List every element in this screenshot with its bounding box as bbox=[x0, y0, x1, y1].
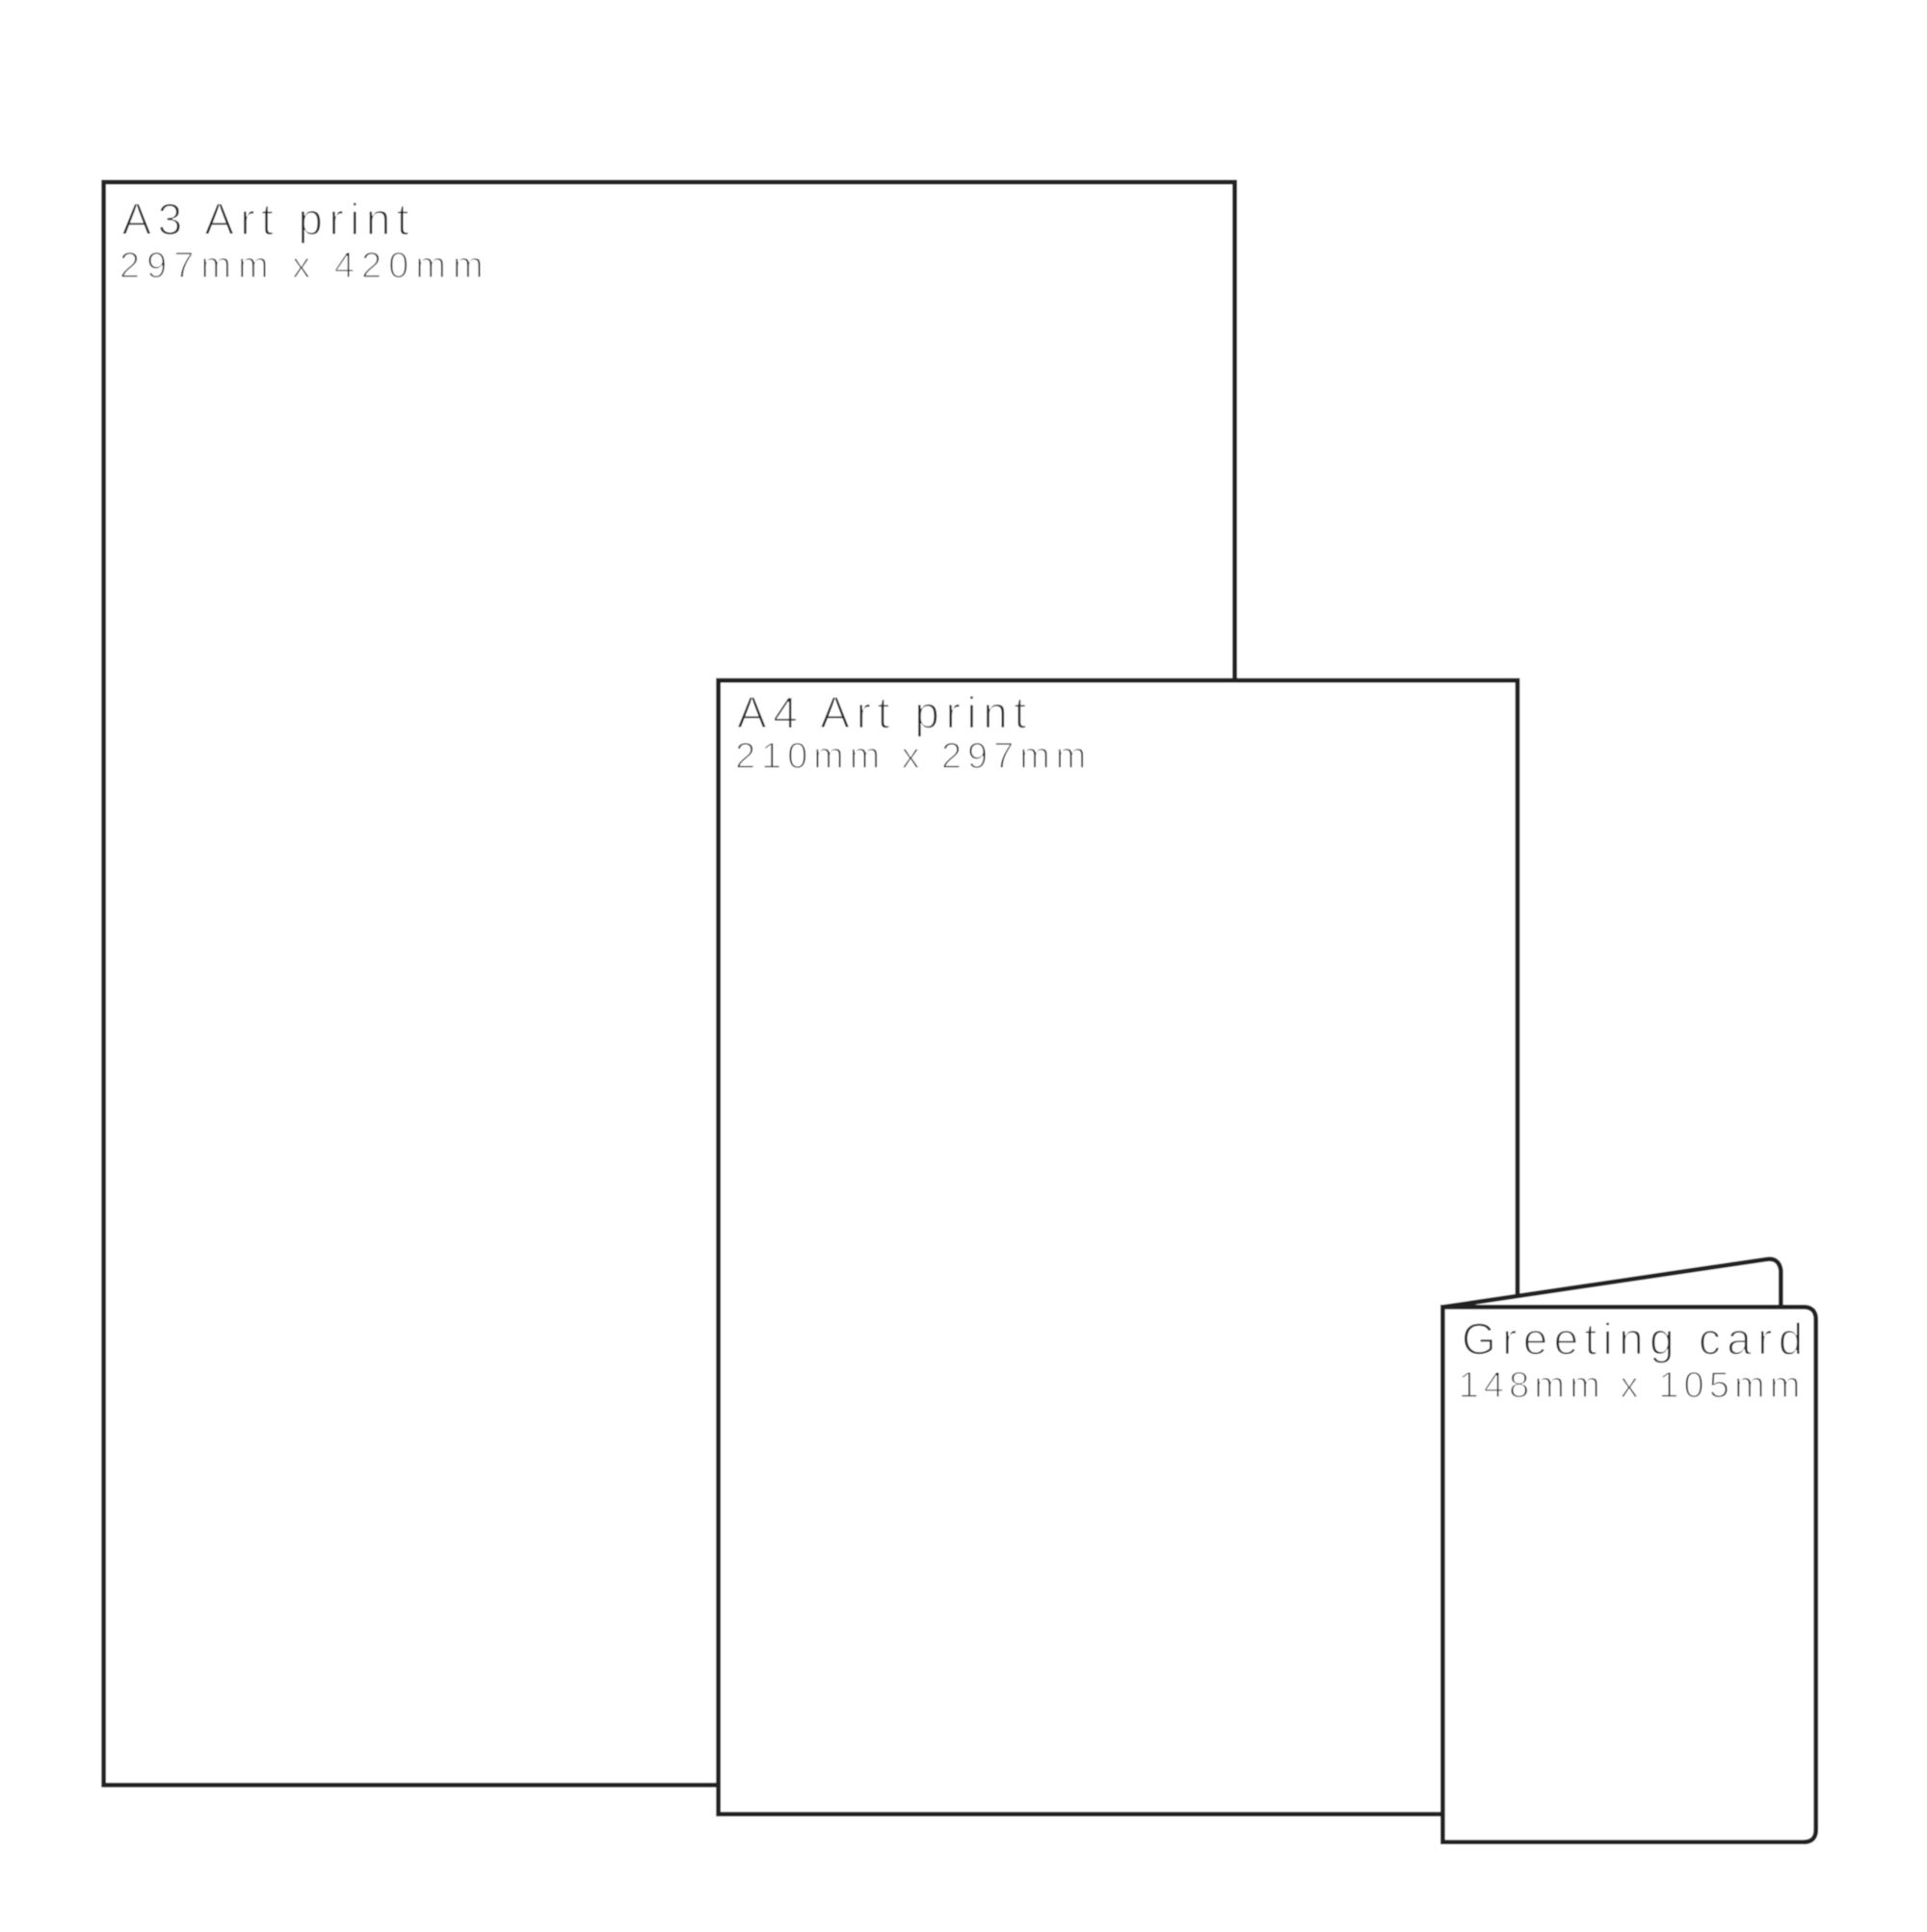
svg-text:Greeting card: Greeting card bbox=[1462, 1314, 1809, 1364]
svg-text:297mm x 420mm: 297mm x 420mm bbox=[119, 246, 490, 286]
svg-text:A3 Art print: A3 Art print bbox=[122, 195, 415, 245]
svg-text:210mm x 297mm: 210mm x 297mm bbox=[735, 736, 1092, 777]
svg-text:148mm x 105mm: 148mm x 105mm bbox=[1459, 1365, 1806, 1406]
svg-text:A4 Art print: A4 Art print bbox=[737, 688, 1033, 738]
